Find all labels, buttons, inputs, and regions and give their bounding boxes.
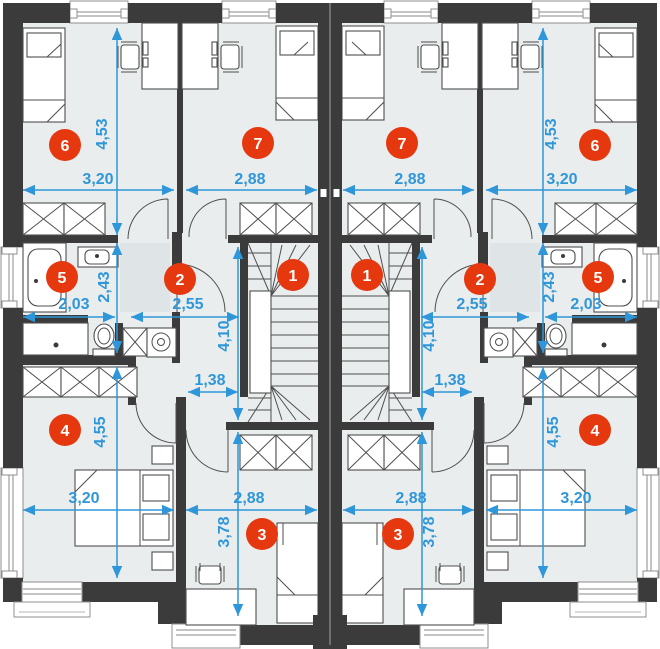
room-marker-7-right: 7 xyxy=(386,127,418,159)
room-marker-1-right: 1 xyxy=(351,259,383,291)
dim-453-left: 4,53 xyxy=(94,118,111,149)
room-marker-3-left: 3 xyxy=(246,518,278,550)
room-marker-4-right: 4 xyxy=(579,414,611,446)
dim-378-left: 3,78 xyxy=(216,516,233,547)
room-marker-6-left: 6 xyxy=(49,129,81,161)
floor-plan: 1 2 3 4 5 6 7 1 2 3 4 5 6 7 3,20 2,88 2,… xyxy=(0,0,660,649)
svg-text:7: 7 xyxy=(398,136,407,153)
dim-255-right: 2,55 xyxy=(456,296,487,313)
dim-410-right: 4,10 xyxy=(421,320,438,351)
floor-plan-svg: 1 2 3 4 5 6 7 1 2 3 4 5 6 7 3,20 2,88 2,… xyxy=(0,0,660,649)
dim-243-right: 2,43 xyxy=(541,271,558,302)
room-marker-2-left: 2 xyxy=(164,263,196,295)
room-marker-5-left: 5 xyxy=(46,261,78,293)
party-wall xyxy=(313,3,347,649)
dim-320-bottom-right: 3,20 xyxy=(560,490,591,507)
dim-288-bottom-left: 2,88 xyxy=(233,490,264,507)
svg-text:2: 2 xyxy=(176,272,185,289)
dim-410-left: 4,10 xyxy=(216,320,233,351)
dim-455-left: 4,55 xyxy=(92,416,109,447)
svg-text:6: 6 xyxy=(591,138,600,155)
dim-320-top-right: 3,20 xyxy=(546,171,577,188)
svg-text:1: 1 xyxy=(289,268,298,285)
dim-288-top-left: 2,88 xyxy=(234,171,265,188)
room-marker-5-right: 5 xyxy=(582,261,614,293)
dim-378-right: 3,78 xyxy=(421,516,438,547)
room-marker-2-right: 2 xyxy=(464,263,496,295)
dim-288-bottom-right: 2,88 xyxy=(395,490,426,507)
dim-203-right: 2,03 xyxy=(570,296,601,313)
dim-138-right: 1,38 xyxy=(434,372,465,389)
dim-203-left: 2,03 xyxy=(58,296,89,313)
dim-320-top-left: 3,20 xyxy=(82,171,113,188)
dim-453-right: 4,53 xyxy=(543,118,560,149)
room-marker-3-right: 3 xyxy=(382,518,414,550)
room-marker-1-left: 1 xyxy=(277,259,309,291)
svg-text:3: 3 xyxy=(394,527,403,544)
svg-text:4: 4 xyxy=(591,423,600,440)
svg-text:1: 1 xyxy=(363,268,372,285)
svg-text:4: 4 xyxy=(61,423,70,440)
dim-455-right: 4,55 xyxy=(545,416,562,447)
dim-243-left: 2,43 xyxy=(96,271,113,302)
unit-right-geometry xyxy=(342,1,659,648)
dim-255-left: 2,55 xyxy=(172,296,203,313)
room-marker-4-left: 4 xyxy=(49,414,81,446)
svg-text:5: 5 xyxy=(594,270,603,287)
room-marker-7-left: 7 xyxy=(242,127,274,159)
svg-text:5: 5 xyxy=(58,270,67,287)
dim-320-bottom-left: 3,20 xyxy=(68,490,99,507)
svg-text:6: 6 xyxy=(61,138,70,155)
svg-text:2: 2 xyxy=(476,272,485,289)
svg-text:7: 7 xyxy=(254,136,263,153)
dim-288-top-right: 2,88 xyxy=(394,171,425,188)
dim-138-left: 1,38 xyxy=(194,372,225,389)
unit-left-geometry xyxy=(1,1,318,648)
room-marker-6-right: 6 xyxy=(579,129,611,161)
svg-text:3: 3 xyxy=(258,527,267,544)
